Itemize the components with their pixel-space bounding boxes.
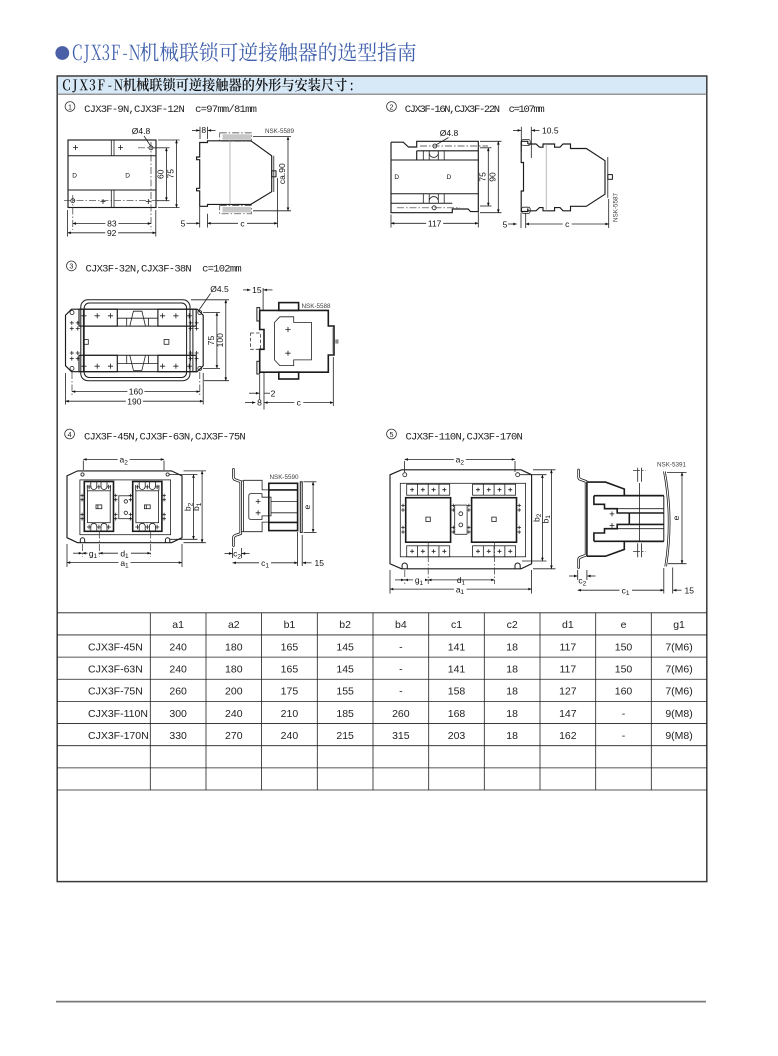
svg-text:158: 158: [448, 686, 466, 698]
svg-text:141: 141: [448, 641, 466, 653]
svg-text:165: 165: [281, 664, 299, 676]
svg-text:117: 117: [559, 664, 576, 676]
svg-text:-: -: [399, 664, 403, 676]
svg-text:8: 8: [257, 398, 262, 408]
svg-text:160: 160: [129, 387, 143, 397]
svg-text:7(M6): 7(M6): [665, 641, 692, 653]
svg-text:75: 75: [477, 172, 487, 182]
svg-text:NSK-5391: NSK-5391: [657, 461, 687, 468]
svg-text:b4: b4: [395, 619, 407, 631]
svg-text:D: D: [125, 173, 130, 180]
svg-text:NSK-5590: NSK-5590: [269, 474, 299, 481]
svg-text:Ø4.8: Ø4.8: [132, 126, 151, 136]
svg-text:Ø4.5: Ø4.5: [210, 284, 229, 294]
svg-text:145: 145: [336, 641, 354, 653]
svg-text:D: D: [394, 174, 399, 181]
svg-text:210: 210: [281, 708, 299, 720]
svg-text:141: 141: [448, 664, 466, 676]
svg-text:2: 2: [390, 102, 394, 111]
svg-text:c2: c2: [233, 549, 241, 561]
svg-text:c: c: [565, 219, 570, 229]
svg-text:c2: c2: [578, 576, 586, 588]
svg-text:100: 100: [215, 333, 225, 347]
svg-text:Ø4.8: Ø4.8: [440, 128, 459, 138]
svg-text:7(M6): 7(M6): [665, 664, 692, 676]
svg-text:7(M6): 7(M6): [665, 686, 692, 698]
svg-text:92: 92: [107, 228, 117, 238]
svg-text:10.5: 10.5: [542, 125, 559, 135]
svg-text:CJX3F-16N,CJX3F-22N c=107mm: CJX3F-16N,CJX3F-22N c=107mm: [405, 104, 545, 116]
svg-text:c1: c1: [451, 619, 462, 631]
svg-text:90: 90: [487, 172, 497, 182]
svg-text:203: 203: [448, 730, 466, 742]
svg-text:240: 240: [225, 708, 243, 720]
svg-text:145: 145: [336, 664, 354, 676]
svg-text:175: 175: [281, 686, 299, 698]
svg-text:5: 5: [181, 219, 186, 229]
svg-text:18: 18: [506, 708, 518, 720]
svg-text:CJX3F-32N,CJX3F-38N c=102mm: CJX3F-32N,CJX3F-38N c=102mm: [86, 264, 242, 276]
svg-text:330: 330: [169, 730, 187, 742]
svg-text:150: 150: [615, 664, 633, 676]
svg-text:CJX3F-45N,CJX3F-63N,CJX3F-75N: CJX3F-45N,CJX3F-63N,CJX3F-75N: [84, 432, 245, 444]
svg-text:185: 185: [336, 708, 354, 720]
svg-text:CJX3F-63N: CJX3F-63N: [88, 664, 143, 676]
svg-text:4: 4: [68, 430, 72, 439]
svg-text:5: 5: [390, 430, 394, 439]
svg-text:260: 260: [392, 708, 410, 720]
svg-text:-: -: [399, 641, 403, 653]
svg-text:CJX3F-9N,CJX3F-12N c=97mm/81m: CJX3F-9N,CJX3F-12N c=97mm/81mm: [84, 104, 257, 116]
svg-text:D: D: [72, 173, 77, 180]
svg-text:NSK-5588: NSK-5588: [302, 303, 332, 310]
svg-text:15: 15: [315, 558, 325, 568]
svg-text:8: 8: [201, 125, 206, 135]
svg-text:168: 168: [448, 708, 466, 720]
svg-text:c2: c2: [507, 619, 518, 631]
svg-text:9(M8): 9(M8): [665, 730, 692, 742]
svg-text:5: 5: [503, 219, 508, 229]
svg-text:CJX3F-45N: CJX3F-45N: [88, 641, 143, 653]
svg-text:18: 18: [506, 686, 518, 698]
svg-text:160: 160: [615, 686, 633, 698]
svg-text:D: D: [447, 174, 452, 181]
svg-text:240: 240: [281, 730, 299, 742]
svg-text:a2: a2: [228, 619, 240, 631]
svg-text:e: e: [302, 504, 312, 509]
svg-text:215: 215: [336, 730, 354, 742]
svg-text:CJX3F-110N,CJX3F-170N: CJX3F-110N,CJX3F-170N: [406, 432, 523, 444]
svg-text:300: 300: [169, 708, 187, 720]
svg-text:165: 165: [281, 641, 299, 653]
svg-text:180: 180: [225, 641, 243, 653]
svg-text:180: 180: [225, 664, 243, 676]
svg-text:117: 117: [428, 218, 442, 228]
svg-text:a1: a1: [172, 619, 184, 631]
svg-text:18: 18: [506, 664, 518, 676]
svg-text:b1: b1: [284, 619, 296, 631]
svg-text:CJX3F-110N: CJX3F-110N: [88, 708, 148, 720]
svg-text:3: 3: [69, 262, 73, 271]
svg-text:18: 18: [506, 641, 518, 653]
svg-text:150: 150: [615, 641, 633, 653]
svg-text:260: 260: [169, 686, 187, 698]
svg-text:e: e: [621, 619, 627, 631]
svg-text:CJX3F-75N: CJX3F-75N: [88, 686, 143, 698]
svg-text:1: 1: [68, 102, 72, 111]
svg-text:60: 60: [155, 169, 165, 179]
svg-text:c: c: [297, 398, 302, 408]
svg-text:2: 2: [271, 388, 276, 398]
svg-text:18: 18: [506, 730, 518, 742]
svg-text:15: 15: [252, 285, 262, 295]
svg-text:b2: b2: [339, 619, 351, 631]
svg-text:162: 162: [559, 730, 577, 742]
svg-text:-: -: [622, 708, 626, 720]
svg-text:240: 240: [169, 664, 187, 676]
svg-text:155: 155: [336, 686, 354, 698]
svg-text:NSK-5589: NSK-5589: [265, 128, 295, 135]
svg-text:-: -: [622, 730, 626, 742]
svg-text:117: 117: [559, 641, 576, 653]
svg-text:g1: g1: [673, 619, 685, 631]
svg-text:9(M8): 9(M8): [665, 708, 692, 720]
svg-text:CJX3F-170N: CJX3F-170N: [88, 730, 149, 742]
svg-text:e: e: [671, 515, 681, 520]
svg-text:270: 270: [225, 730, 243, 742]
svg-text:240: 240: [169, 641, 187, 653]
svg-text:75: 75: [166, 169, 176, 179]
svg-text:190: 190: [127, 396, 141, 406]
svg-text:ca.90: ca.90: [277, 163, 287, 184]
svg-text:NSK-5587: NSK-5587: [613, 192, 620, 222]
svg-text:d1: d1: [562, 619, 574, 631]
svg-text:315: 315: [392, 730, 410, 742]
svg-text:15: 15: [685, 585, 695, 595]
svg-text:-: -: [399, 686, 403, 698]
svg-text:147: 147: [559, 708, 577, 720]
svg-text:200: 200: [225, 686, 243, 698]
svg-text:127: 127: [559, 686, 577, 698]
